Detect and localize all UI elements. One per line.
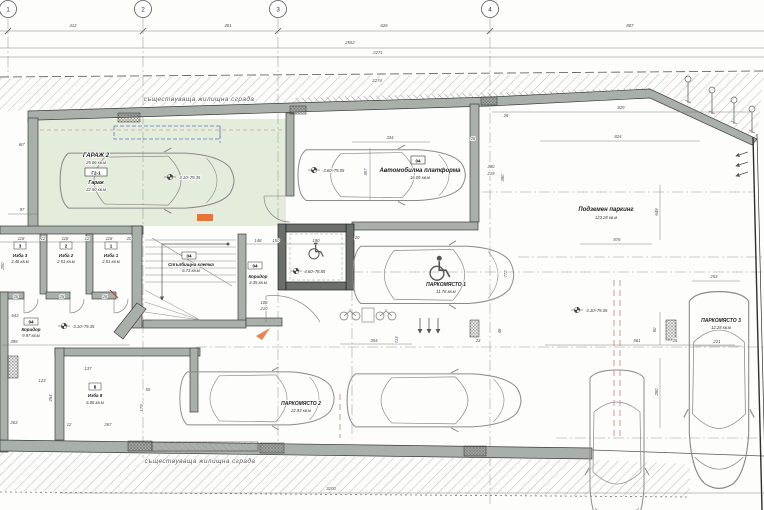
dimension-label: 2271 xyxy=(372,50,383,55)
dimension-label: 643 xyxy=(11,313,19,318)
parking3-area: 12.28 кв.м xyxy=(711,325,731,330)
corridor-left-level: -3.10÷79.35 xyxy=(72,324,95,329)
dimension-label: 108 xyxy=(260,300,268,305)
underground-area: 123.28 кв.м xyxy=(595,215,617,220)
dimension-label: 12 xyxy=(85,236,90,241)
bike-symbols xyxy=(340,308,396,322)
garage2-level: -3.10÷79.35 xyxy=(178,175,201,180)
izba2-area: 2.51 кв.м xyxy=(56,259,75,264)
grid-bubble-4: 4 xyxy=(488,7,492,14)
staircase-treads xyxy=(145,238,236,320)
izba3-tag: 3 xyxy=(19,244,22,249)
garage2-tag: Г2-1 xyxy=(91,170,101,175)
garage2-title-area: 25.06 кв.м xyxy=(85,160,106,165)
dimension-label: 221 xyxy=(712,339,721,344)
dimension-label: 25 xyxy=(672,338,678,343)
dimension-label: 150 xyxy=(272,238,280,243)
existing-building-label-top: съществуваща жилищна сграда xyxy=(144,95,255,103)
dimension-label: 137 xyxy=(84,366,92,371)
dimension-label: 23 xyxy=(475,338,481,343)
dimension-label: 254 xyxy=(48,394,53,403)
car-parking2a xyxy=(180,367,334,430)
platform-level: -3.60÷79.05 xyxy=(322,168,345,173)
dimension-label: 3100 xyxy=(326,486,336,491)
dimension-label: 713 xyxy=(394,336,399,344)
dimension-label: 561 xyxy=(633,338,641,343)
dimension-label: 772 xyxy=(503,270,508,278)
platform-area: 16.05 кв.м xyxy=(410,175,430,180)
dimension-label: 50 xyxy=(652,327,657,332)
corridor-mid-tag: 04 xyxy=(252,264,258,269)
corridor-left-tag: 04 xyxy=(28,320,34,325)
dimension-label: 28 xyxy=(13,294,19,299)
izba2-name: Изба 2 xyxy=(59,252,74,258)
parking2-area: 22.93 кв.м xyxy=(290,408,311,413)
dimension-label: 28 xyxy=(59,294,65,299)
grid-bubble-2: 2 xyxy=(141,7,145,14)
parking3-name: ПАРКОМЯСТО 3 xyxy=(701,318,741,324)
dimension-label: 307 xyxy=(363,168,368,176)
grid-bubbles: 1 2 3 4 xyxy=(0,1,499,18)
dimension-label: 334 xyxy=(386,135,394,140)
garage2-name: Гараж xyxy=(88,180,104,186)
corridor-mid-area: 4.35 кв.м xyxy=(249,280,267,285)
ramp-arrows xyxy=(420,318,438,333)
wheelchair-icon-lift xyxy=(309,241,323,259)
underground-level: -3.10÷79.35 xyxy=(585,308,608,313)
dimension-label: 876 xyxy=(613,237,621,242)
dimension-label: 2552 xyxy=(344,40,355,45)
dimension-label: 12 xyxy=(67,422,72,427)
dimension-label: 60° xyxy=(19,142,26,147)
izba3-area: 2.46 кв.м xyxy=(10,259,29,264)
platform-name: Автомобилна платформа xyxy=(378,167,461,174)
parking1-name: ПАРКОМЯСТО 1 xyxy=(426,282,466,288)
izba1-area: 2.51 кв.м xyxy=(101,259,120,264)
car-parking2b xyxy=(347,369,521,432)
dimension-label: 829 xyxy=(617,105,625,110)
dimension-label: 20 xyxy=(126,236,132,241)
dimension-label: 649 xyxy=(654,208,659,216)
wheelchair-icon xyxy=(430,256,450,280)
flow-arrows xyxy=(736,152,748,176)
izba1-name: Изба 1 xyxy=(104,252,119,258)
izba8-area: 6.06 кв.м xyxy=(86,400,104,405)
grid-bubble-1: 1 xyxy=(6,7,10,14)
dimension-label: 401 xyxy=(224,23,232,28)
dimension-label: 219 xyxy=(486,171,495,176)
dimension-label: 399 xyxy=(10,339,18,344)
garage2-title: ГАРАЖ 2 xyxy=(83,153,110,159)
dimension-label: 412 xyxy=(69,23,77,28)
dimension-label: 190 xyxy=(312,238,320,243)
platform-tag: 04 xyxy=(415,158,421,163)
dimension-label: 200 xyxy=(0,262,5,271)
floor-plan-sheet: 1 2 3 4 съществуваща жилищна сграда съще… xyxy=(0,0,764,510)
dimension-label: 28 xyxy=(102,294,108,299)
dimension-label: 118 xyxy=(62,236,69,241)
izba8-tag: 8 xyxy=(94,385,97,390)
dimension-label: 280 xyxy=(654,388,659,397)
parking2-name: ПАРКОМЯСТО 2 xyxy=(281,401,321,407)
dimension-label: 148 xyxy=(254,238,262,243)
garage2-floor xyxy=(38,119,286,226)
izba2-tag: 2 xyxy=(65,244,68,249)
dimension-label: 26 xyxy=(503,113,509,118)
izba8-name: Изба 8 xyxy=(88,392,103,398)
lift-level: -4.60÷78.85 xyxy=(303,269,326,274)
staircase-area: 6.73 кв.м xyxy=(182,268,200,273)
staircase-tag: 04 xyxy=(186,254,192,259)
izba1-tag: 1 xyxy=(110,244,113,249)
highlight-rect xyxy=(197,214,213,221)
garage2-area: 22.50 кв.м xyxy=(85,187,106,192)
dimension-label: 380 xyxy=(487,164,495,169)
dimension-label: 118 xyxy=(18,236,25,241)
dimension-label: 55 xyxy=(146,387,151,392)
floor-plan-drawing: 1 2 3 4 съществуваща жилищна сграда съще… xyxy=(0,0,764,510)
dimension-label: 267 xyxy=(103,422,112,427)
dimension-label: 179 xyxy=(139,404,144,412)
highlight-triangle xyxy=(256,328,270,340)
dimension-label: 20 xyxy=(354,235,360,240)
dimension-label: 12 xyxy=(41,236,46,241)
corridor-left-name: Коридор xyxy=(21,327,40,332)
car-platform xyxy=(298,145,465,205)
dimension-label: 97 xyxy=(20,207,25,212)
car-parking1 xyxy=(353,241,514,309)
existing-building-label-bottom: съществуваща жилищна сграда xyxy=(145,457,256,465)
dimension-label: 807 xyxy=(626,23,634,28)
site-boundary xyxy=(753,134,764,510)
izba3-name: Изба 3 xyxy=(13,252,28,258)
dimension-label: 2274 xyxy=(371,78,382,83)
grid-bubble-3: 3 xyxy=(276,7,280,14)
dimension-label: 118 xyxy=(106,236,113,241)
dimension-label: 28 xyxy=(470,136,476,141)
dimension-label: 390 xyxy=(500,174,505,182)
dimension-label: 824 xyxy=(614,134,622,139)
dimension-label: 210 xyxy=(259,306,268,311)
dimension-label: 48 xyxy=(497,328,502,333)
dimension-label: 123 xyxy=(38,378,46,383)
dimension-label: 354 xyxy=(370,338,378,343)
underground-name: Подземен паркинг xyxy=(578,207,634,213)
dimension-label: 253 xyxy=(709,274,718,279)
corridor-left-area: 9.97 кв.м xyxy=(22,333,40,338)
corridor-mid-name: Коридор xyxy=(248,274,267,279)
staircase-name: Стълбищна клетка xyxy=(168,261,214,267)
dimension-label: 626 xyxy=(380,23,388,28)
parking1-area: 11.76 кв.м xyxy=(436,289,456,294)
dimension-label: 263 xyxy=(9,420,18,425)
